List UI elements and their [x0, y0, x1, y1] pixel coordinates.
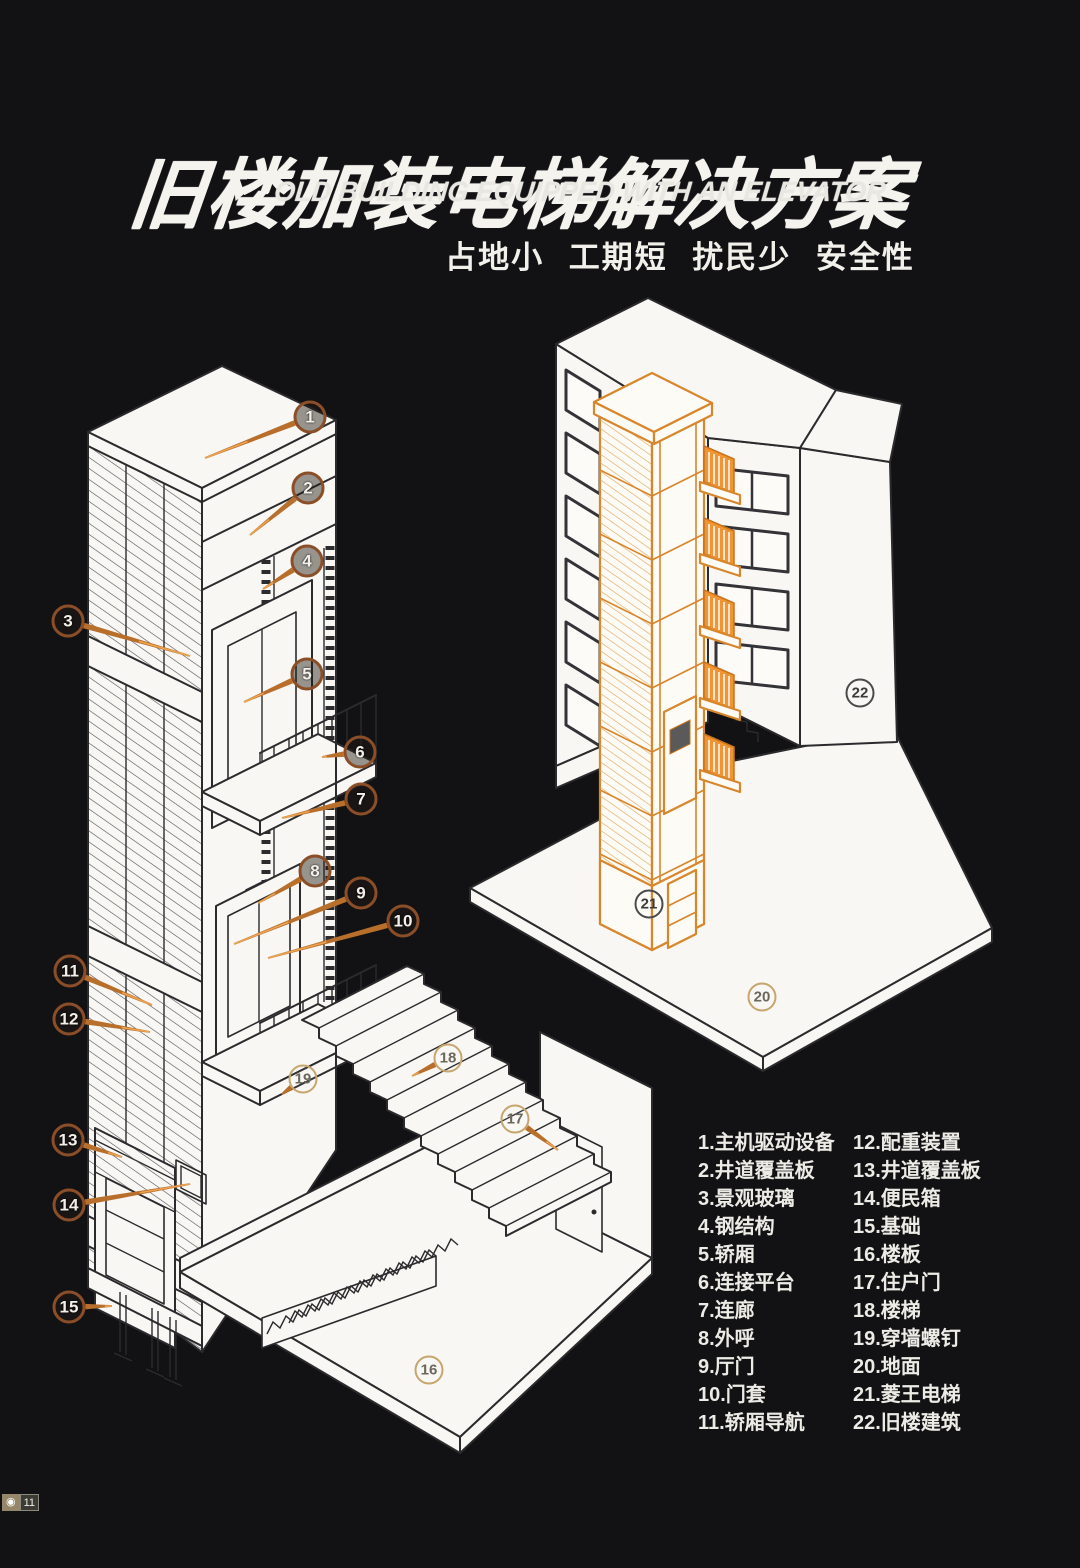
- callout-18: 18: [434, 1044, 463, 1073]
- legend-item-13: 13.井道覆盖板: [853, 1157, 1023, 1185]
- callout-3: 3: [52, 605, 85, 638]
- legend-item-19: 19.穿墙螺钉: [853, 1325, 1023, 1353]
- callout-8: 8: [299, 855, 332, 888]
- legend-item-15: 15.基础: [853, 1213, 1023, 1241]
- callout-9: 9: [345, 877, 378, 910]
- legend-item-11: 11.轿厢导航: [698, 1409, 853, 1437]
- legend-item-4: 4.钢结构: [698, 1213, 853, 1241]
- callout-14: 14: [53, 1189, 86, 1222]
- legend-item-16: 16.楼板: [853, 1241, 1023, 1269]
- legend-item-1: 1.主机驱动设备: [698, 1129, 853, 1157]
- legend-item-17: 17.住户门: [853, 1269, 1023, 1297]
- watermark-pin-icon: ◉: [2, 1494, 20, 1511]
- legend-item-6: 6.连接平台: [698, 1269, 853, 1297]
- legend-item-8: 8.外呼: [698, 1325, 853, 1353]
- callout-20: 20: [748, 983, 777, 1012]
- legend-item-20: 20.地面: [853, 1353, 1023, 1381]
- callout-17: 17: [501, 1105, 530, 1134]
- callout-13: 13: [52, 1124, 85, 1157]
- callout-6: 6: [344, 736, 377, 769]
- tagline: 占地小 工期短 扰民少 安全性: [280, 232, 1080, 277]
- callout-4: 4: [291, 545, 324, 578]
- callout-7: 7: [345, 783, 378, 816]
- callout-11: 11: [54, 955, 87, 988]
- callout-19: 19: [289, 1065, 318, 1094]
- watermark-count: 11: [20, 1494, 39, 1511]
- legend-item-5: 5.轿厢: [698, 1241, 853, 1269]
- legend-item-12: 12.配重装置: [853, 1129, 1023, 1157]
- watermark-badge: ◉ 11: [2, 1494, 39, 1511]
- legend-item-21: 21.菱王电梯: [853, 1381, 1023, 1409]
- poster-background: 12345678910111213141516171819202122 旧楼加装…: [0, 0, 1080, 1568]
- callout-22: 22: [846, 679, 875, 708]
- callout-2: 2: [292, 472, 325, 505]
- callout-21: 21: [635, 890, 664, 919]
- callout-10: 10: [387, 905, 420, 938]
- legend-item-9: 9.厅门: [698, 1353, 853, 1381]
- callout-15: 15: [53, 1291, 86, 1324]
- legend-column-1: 1.主机驱动设备2.井道覆盖板3.景观玻璃4.钢结构5.轿厢6.连接平台7.连廊…: [698, 1129, 853, 1437]
- legend-item-10: 10.门套: [698, 1381, 853, 1409]
- legend-item-14: 14.便民箱: [853, 1185, 1023, 1213]
- legend-item-2: 2.井道覆盖板: [698, 1157, 853, 1185]
- legend-item-7: 7.连廊: [698, 1297, 853, 1325]
- callout-5: 5: [291, 658, 324, 691]
- legend-item-18: 18.楼梯: [853, 1297, 1023, 1325]
- legend-item-3: 3.景观玻璃: [698, 1185, 853, 1213]
- legend-column-2: 12.配重装置13.井道覆盖板14.便民箱15.基础16.楼板17.住户门18.…: [853, 1129, 1023, 1437]
- legend-item-22: 22.旧楼建筑: [853, 1409, 1023, 1437]
- callout-1: 1: [294, 401, 327, 434]
- page-subtitle-en: OLD BUILDING EQUIPPED WITH AN ELEVATOR: [137, 176, 1024, 208]
- callout-12: 12: [53, 1003, 86, 1036]
- callout-16: 16: [415, 1356, 444, 1385]
